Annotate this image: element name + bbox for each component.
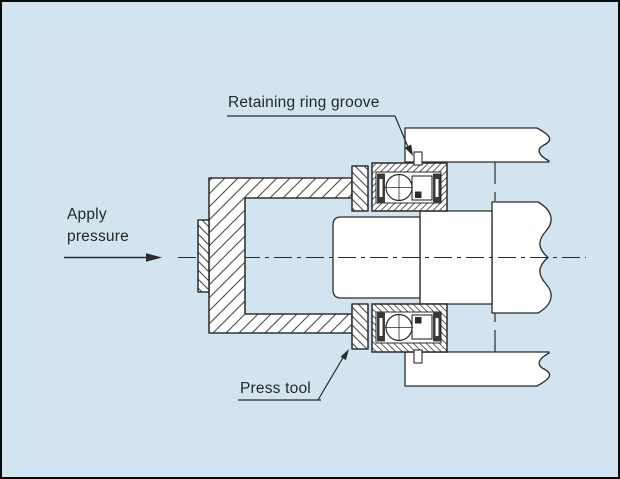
press-tool-leader-line [318, 356, 344, 400]
press-tool-leader-arrowhead [341, 349, 350, 360]
diagram-canvas: Retaining ring groove Apply pressure Pre… [0, 0, 620, 479]
callout-retaining-ring-groove [227, 116, 413, 156]
press-tool-label: Press tool [240, 378, 311, 400]
bearing-cage [412, 176, 432, 200]
retaining-ring-groove [414, 152, 422, 165]
bearing-seal-left [378, 174, 385, 202]
retaining-ring-groove-label: Retaining ring groove [228, 92, 380, 114]
pressure-arrow-icon [64, 253, 162, 262]
apply-pressure-line1: Apply [67, 204, 129, 226]
apply-pressure-line2: pressure [67, 226, 129, 248]
bearing-seal-right [434, 174, 441, 202]
apply-pressure-label: Apply pressure [67, 204, 129, 248]
